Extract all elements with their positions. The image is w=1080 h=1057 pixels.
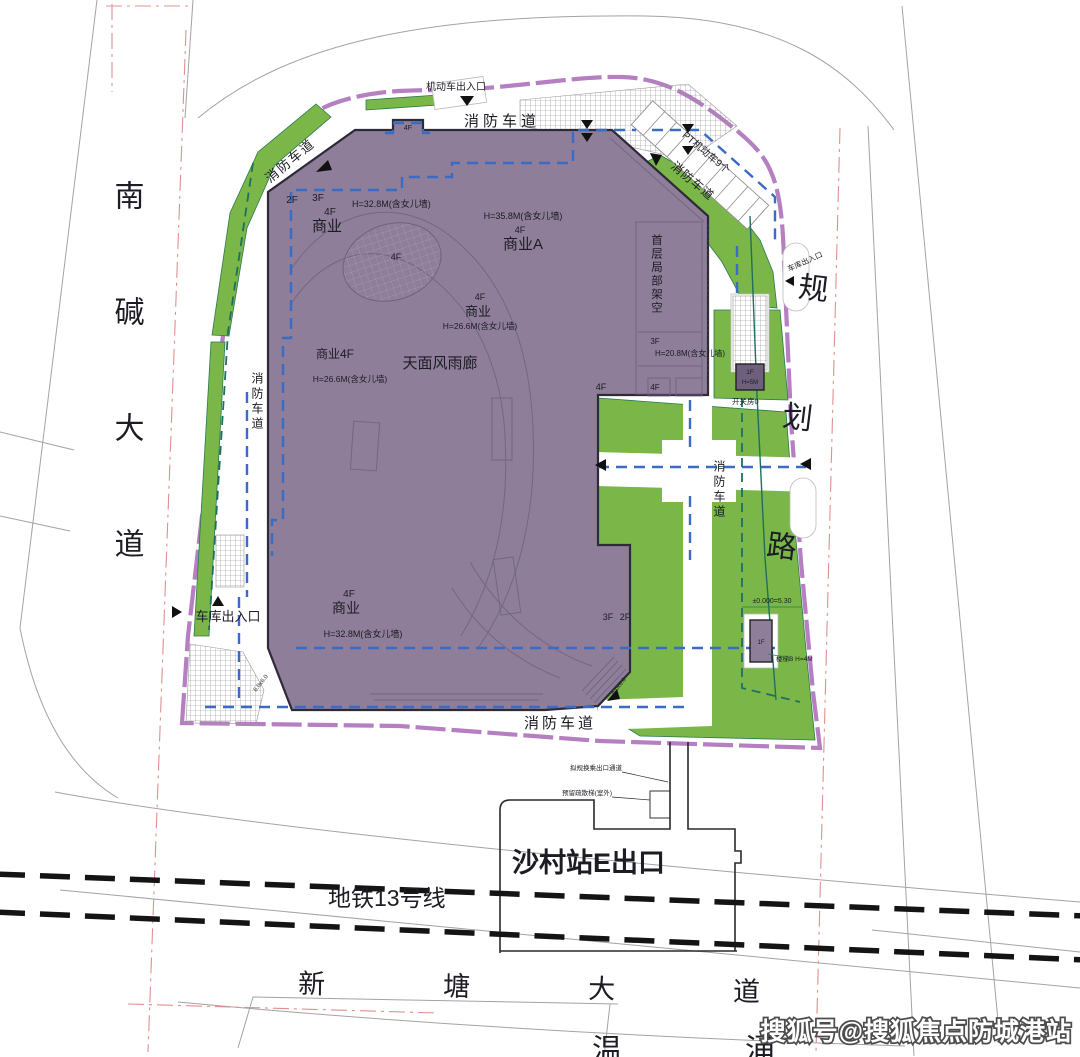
fire-lane-label-top: 消防车道 [464,113,540,130]
use-label: 商业 [465,304,491,319]
floor-label: 3F [603,612,614,622]
use-label: 商业 [312,218,342,235]
floor-label: 4F [475,292,486,302]
road-label-left: 南碱大道 [110,180,145,644]
floor-label: 4F [596,382,607,392]
entrance-label-left: 车库出入口 [195,609,260,624]
switch-room-box [736,364,764,390]
road-line [55,792,1080,902]
switch-room-label: 开关房0 [732,396,759,406]
use-label: 商业A [503,236,543,253]
fire-lane-label-right: 消防车道 [712,460,726,520]
floor-label: 4F [324,207,336,218]
station-note: 拟规换乘出口通道 [570,763,623,772]
floor-label: 3F [650,337,659,346]
fire-lane-label-bottom: 消防车道 [524,715,596,732]
switch-room-height: H=5M [742,380,758,386]
watermark: 搜狐号@搜狐焦点防城港站 [761,1017,1072,1046]
creek-char: 温 [592,1034,622,1057]
road-line [868,126,914,1056]
road-line [872,930,1080,952]
floor-label: 4F [650,383,659,392]
station-note: 预留疏散梯(室外) [562,788,612,797]
height-label: H=26.6M(含女儿墙) [443,321,518,331]
switch-room-floor: 1F [746,369,754,376]
canopy-label: 天面风雨廊 [402,355,477,372]
road-line [0,432,74,531]
metro-label: 地铁13号线 [328,885,446,911]
station-exit-label: 沙村站E出口 [512,848,665,878]
floor-label: 2F [286,195,298,206]
height-label: H=26.6M(含女儿墙) [313,374,388,384]
use-label: 商业4F [316,346,354,361]
floor-label: 4F [404,125,412,132]
entrance-label-top: 机动车出入口 [426,80,486,93]
hatch-left-box [216,535,244,587]
height-label: H=35.8M(含女儿墙) [484,210,563,221]
metro-dashed-lines [0,874,1080,960]
level-label: ±0.000=5.30 [752,598,791,605]
use-label: 商业 [332,600,360,616]
height-label: H=32.8M(含女儿墙) [324,628,403,639]
stilt-hatch-edge [700,222,710,394]
floor-label: 4F [515,225,526,235]
hatch-walkway [733,296,767,370]
height-label: H=20.8M(含女儿墙) [655,348,725,358]
site-plan-canvas: 南碱大道 规划路 新塘大道 地铁13号线 温 涌 沙村站E出口 拟规换乘出口通道… [0,0,1080,1057]
floor-label: 2F [620,612,631,622]
site-plan-svg: 南碱大道 规划路 新塘大道 地铁13号线 温 涌 沙村站E出口 拟规换乘出口通道… [0,0,1080,1057]
road-line [20,628,118,798]
road-line [902,6,1000,1042]
stilt-label: 首层局部架空 [650,233,663,315]
road-line [185,0,193,118]
arrow-right-icon [172,606,182,618]
road-line [20,0,97,628]
floor-label: 4F [343,589,355,600]
stair-b-floor: 1F [757,640,764,646]
road-label-bottom: 新塘大道 [298,969,878,1009]
path-elbow [598,696,712,730]
floor-label: 4F [391,252,402,262]
station-vent-box [650,791,670,818]
stair-b-label: 楼梯B H=4M [776,654,813,663]
road-line [238,997,618,1057]
floor-label: 3F [312,193,324,204]
fire-lane-label-left: 消防车道 [250,372,264,432]
height-label: H=32.8M(含女儿墙) [352,198,431,209]
